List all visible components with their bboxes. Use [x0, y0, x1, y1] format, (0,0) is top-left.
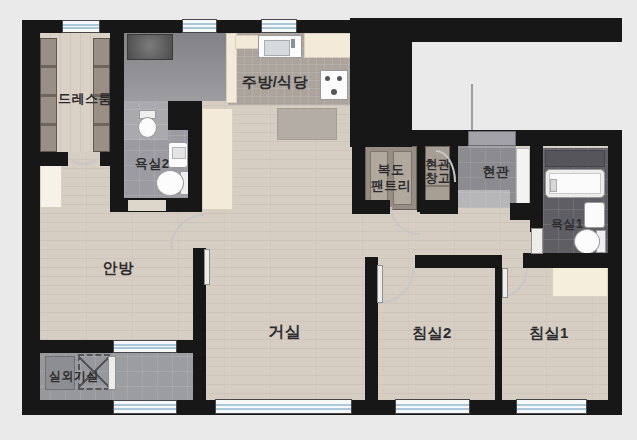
- window-master-balcony: [113, 340, 177, 353]
- balcony-floor: [112, 352, 195, 402]
- wall-balcony-stub: [177, 340, 206, 353]
- unit-boundary-marker: [471, 84, 473, 130]
- gas-stove: [320, 70, 348, 100]
- window-utility-top: [182, 19, 217, 33]
- wall-entry-bottom-2: [420, 200, 458, 214]
- bathroom1-door-leaf: [531, 228, 543, 254]
- toilet-bowl: [156, 170, 184, 196]
- window-bedroom2-bottom: [395, 399, 470, 414]
- wall-bedroom2-top: [415, 255, 495, 268]
- bedroom1-wardrobe: [552, 267, 608, 297]
- wall-entry-bottom-1: [352, 200, 390, 214]
- wall-dressroom-right: [110, 20, 124, 212]
- label-bathroom2: 욕실2: [135, 156, 170, 172]
- window-dressroom-top: [62, 20, 100, 33]
- wall-bedroom-divider: [495, 255, 502, 400]
- sink-faucet: [291, 39, 295, 48]
- label-living-room: 거실: [269, 322, 302, 341]
- label-bathroom1: 욕실1: [551, 217, 583, 231]
- label-dressroom: 드레스룸: [58, 91, 112, 107]
- window-kitchen-top: [261, 19, 297, 33]
- kitchen-counter-right: [304, 33, 352, 58]
- toilet-bowl: [138, 117, 157, 138]
- tub-faucet: [550, 179, 557, 192]
- window-living-bottom: [215, 399, 352, 414]
- label-master-bedroom: 안방: [103, 259, 134, 277]
- wall-entry-bottom-3: [510, 203, 530, 220]
- sink-basin-inner: [264, 40, 290, 56]
- dining-rug: [277, 108, 337, 140]
- wall-top-right-bar: [412, 18, 622, 42]
- wall-left: [22, 20, 40, 415]
- dressroom-wardrobe-left: [40, 38, 57, 152]
- wall-bath2-top-chunk: [168, 101, 202, 130]
- wall-dressroom-bottom-right: [100, 152, 124, 166]
- label-bedroom1: 침실1: [529, 324, 569, 342]
- wall-master-balcony: [22, 340, 113, 353]
- toilet-compartment-toilet: [135, 110, 159, 137]
- floor-plan: 드레스룸 주방/식당 욕실2 복도 팬트리 현관 창고 현관 욕실1 안방 거실…: [0, 0, 637, 440]
- label-entry: 현관: [483, 164, 510, 180]
- kitchen-counter-top: [235, 35, 260, 49]
- toilet-bowl: [574, 229, 600, 254]
- label-outdoor-unit-room: 실외기실: [49, 369, 99, 383]
- toilet-bath1: [574, 228, 605, 253]
- burner-dot: [337, 76, 342, 81]
- wall-dressroom-bottom-left: [22, 152, 68, 166]
- burner-dot: [325, 76, 330, 81]
- master-closet: [40, 160, 62, 208]
- bath2-door-threshold: [128, 200, 166, 211]
- hall-cabinet: [202, 108, 233, 210]
- label-hall-pantry: 복도 팬트리: [371, 162, 412, 193]
- bathtub: [545, 169, 605, 198]
- shoe-cabinet: [516, 148, 530, 210]
- window-bedroom1-bottom: [516, 399, 587, 414]
- label-kitchen-dining: 주방/식당: [242, 73, 309, 91]
- bedroom2-door-leaf: [377, 265, 383, 303]
- kitchen-sink: [258, 35, 302, 58]
- burner-dot: [331, 89, 337, 95]
- basin-bath1: [584, 202, 605, 228]
- window-balcony-bottom: [113, 400, 177, 414]
- wall-bathroom1-left: [530, 146, 543, 232]
- entry-step: [455, 190, 510, 208]
- wall-bedroom1-top: [523, 253, 608, 268]
- front-door-leaf: [468, 131, 516, 146]
- label-entry-storage: 현관 창고: [426, 157, 451, 186]
- outdoor-room-door-leaf: [108, 356, 116, 390]
- toilet-bath2: [156, 168, 188, 196]
- basin-bath2: [168, 142, 188, 168]
- label-bedroom2: 침실2: [412, 324, 452, 342]
- master-door-leaf: [204, 249, 210, 285]
- bedroom1-door-leaf: [502, 268, 508, 298]
- bathroom1-shelf: [545, 150, 605, 167]
- washing-machine: [127, 34, 173, 60]
- wall-kitchen-mass: [350, 18, 412, 147]
- wall-right: [608, 130, 622, 415]
- basin-inner: [172, 147, 186, 159]
